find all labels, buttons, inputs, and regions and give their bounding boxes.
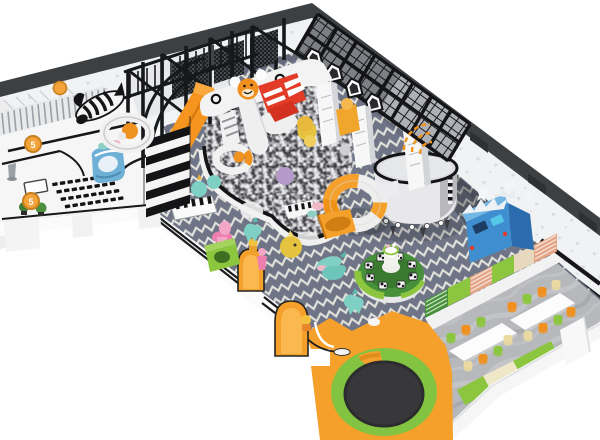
svg-text:5: 5 (30, 140, 35, 150)
svg-text:5: 5 (28, 197, 33, 207)
